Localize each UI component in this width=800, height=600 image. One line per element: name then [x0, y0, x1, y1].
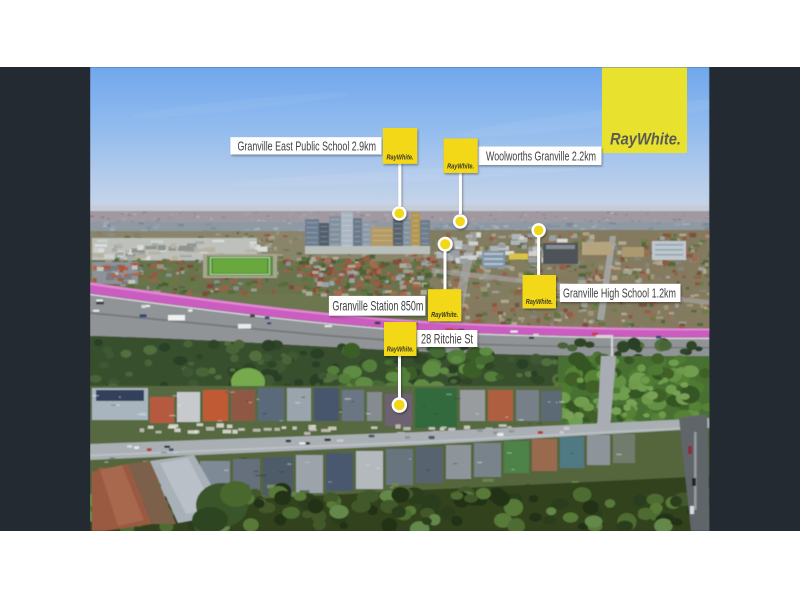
- svg-text:28 Ritchie St: 28 Ritchie St: [421, 331, 473, 346]
- svg-text:RayWhite.: RayWhite.: [610, 131, 681, 149]
- svg-text:RayWhite.: RayWhite.: [431, 310, 458, 319]
- svg-text:RayWhite.: RayWhite.: [526, 297, 553, 306]
- svg-text:Woolworths Granville 2.2km: Woolworths Granville 2.2km: [486, 148, 596, 163]
- svg-text:Granville Station 850m: Granville Station 850m: [332, 298, 423, 314]
- svg-text:RayWhite.: RayWhite.: [387, 345, 414, 354]
- svg-text:RayWhite.: RayWhite.: [387, 152, 414, 161]
- svg-text:Granville East Public School 2: Granville East Public School 2.9km: [238, 139, 377, 154]
- svg-text:Granville High School 1.2km: Granville High School 1.2km: [563, 286, 676, 301]
- svg-text:RayWhite.: RayWhite.: [447, 162, 474, 171]
